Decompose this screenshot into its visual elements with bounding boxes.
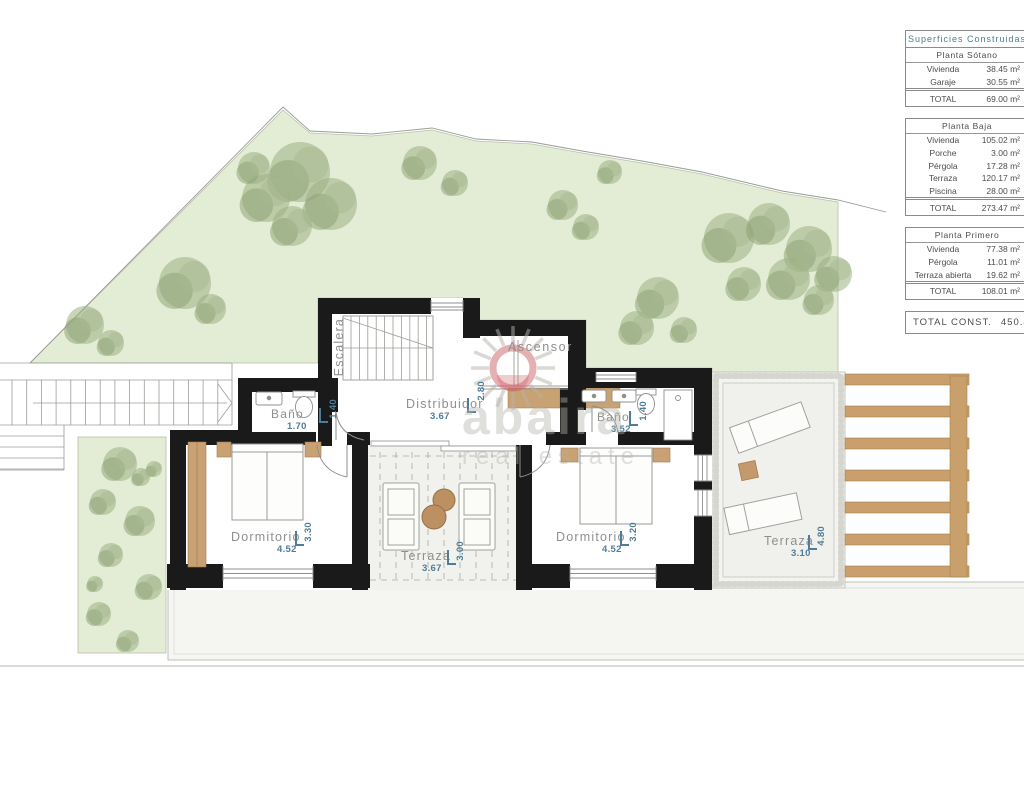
room-label-terraza-right: Terraza xyxy=(764,534,814,548)
areas-table-primero: Planta Primero Vivienda 77.38 m² Pérgola… xyxy=(905,227,1024,300)
nightstand xyxy=(305,442,321,457)
section-title: Planta Primero xyxy=(906,228,1024,243)
shower xyxy=(664,390,692,440)
room-label-terraza-center: Terraza xyxy=(401,549,451,563)
dimension-width: 3.67 xyxy=(430,411,450,422)
table-row: Pérgola 11.01 m² xyxy=(906,256,1024,269)
areas-table-sotano: Superficies Construidas Planta Sótano Vi… xyxy=(905,30,1024,107)
right-terrace xyxy=(712,372,845,588)
room-label-dormitorio-left: Dormitorio xyxy=(231,530,301,544)
dimension-height: 3.30 xyxy=(303,522,314,542)
table-row: Porche 3.00 m² xyxy=(906,147,1024,160)
dimension-width: 3.52 xyxy=(611,424,631,435)
nightstand xyxy=(561,448,578,462)
round-table xyxy=(422,505,446,529)
dimension-height: 3.00 xyxy=(455,541,466,561)
table-row: Vivienda 77.38 m² xyxy=(906,243,1024,256)
room-label-ascensor: Ascensor xyxy=(508,340,573,354)
table-row: Garaje 30.55 m² xyxy=(906,76,1024,89)
section-title: Planta Sótano xyxy=(906,48,1024,63)
side-table xyxy=(738,461,758,481)
room-label-bano-left: Baño xyxy=(271,407,304,421)
dimension-width: 3.10 xyxy=(791,548,811,559)
areas-table-baja: Planta Baja Vivienda 105.02 m² Porche 3.… xyxy=(905,118,1024,216)
dimension-width: 1.70 xyxy=(287,421,307,432)
double-bed xyxy=(580,448,652,524)
areas-title-block: Superficies Construidas Planta Sótano Vi… xyxy=(905,30,1024,334)
section-title: Planta Baja xyxy=(906,119,1024,134)
table-total-row: TOTAL 273.47 m² xyxy=(906,197,1024,215)
sliding-door xyxy=(371,441,449,446)
armchair xyxy=(459,483,495,550)
room-label-escalera: Escalera xyxy=(332,318,346,376)
armchair xyxy=(383,483,419,550)
table-row: Terraza 120.17 m² xyxy=(906,172,1024,185)
table-total-row: TOTAL 108.01 m² xyxy=(906,281,1024,299)
dimension-bracket-icon xyxy=(319,408,328,423)
dimension-width: 4.52 xyxy=(277,544,297,555)
table-row: Piscina 28.00 m² xyxy=(906,185,1024,198)
dimension-height: 4.80 xyxy=(816,526,827,546)
nightstand xyxy=(217,442,231,457)
grand-total-row: TOTAL CONST. 450.48 m² xyxy=(905,311,1024,334)
table-row: Terraza abierta 19.62 m² xyxy=(906,268,1024,281)
nightstand xyxy=(653,448,670,462)
table-header: Superficies Construidas xyxy=(906,31,1024,48)
dimension-height: 1.40 xyxy=(328,399,339,419)
table-row: Vivienda 105.02 m² xyxy=(906,134,1024,147)
sliding-door xyxy=(441,446,516,451)
table-total-row: TOTAL 69.00 m² xyxy=(906,88,1024,106)
dimension-width: 4.52 xyxy=(602,544,622,555)
dimension-height: 3.20 xyxy=(628,522,639,542)
dimension-height: 1.40 xyxy=(638,401,649,421)
double-bed xyxy=(232,444,303,520)
floor-plan-canvas xyxy=(0,0,1024,800)
table-row: Pérgola 17.28 m² xyxy=(906,159,1024,172)
room-label-dormitorio-right: Dormitorio xyxy=(556,530,626,544)
dimension-width: 3.67 xyxy=(422,563,442,574)
table-row: Vivienda 38.45 m² xyxy=(906,63,1024,76)
room-label-bano-right: Baño xyxy=(597,410,630,424)
dimension-bracket-icon xyxy=(467,398,476,413)
pergola-beams xyxy=(845,374,969,577)
dimension-height: 2.80 xyxy=(476,381,487,401)
floorplan-sheet: Escalera Ascensor Distribuidor 2.80 3.67… xyxy=(0,0,1024,800)
